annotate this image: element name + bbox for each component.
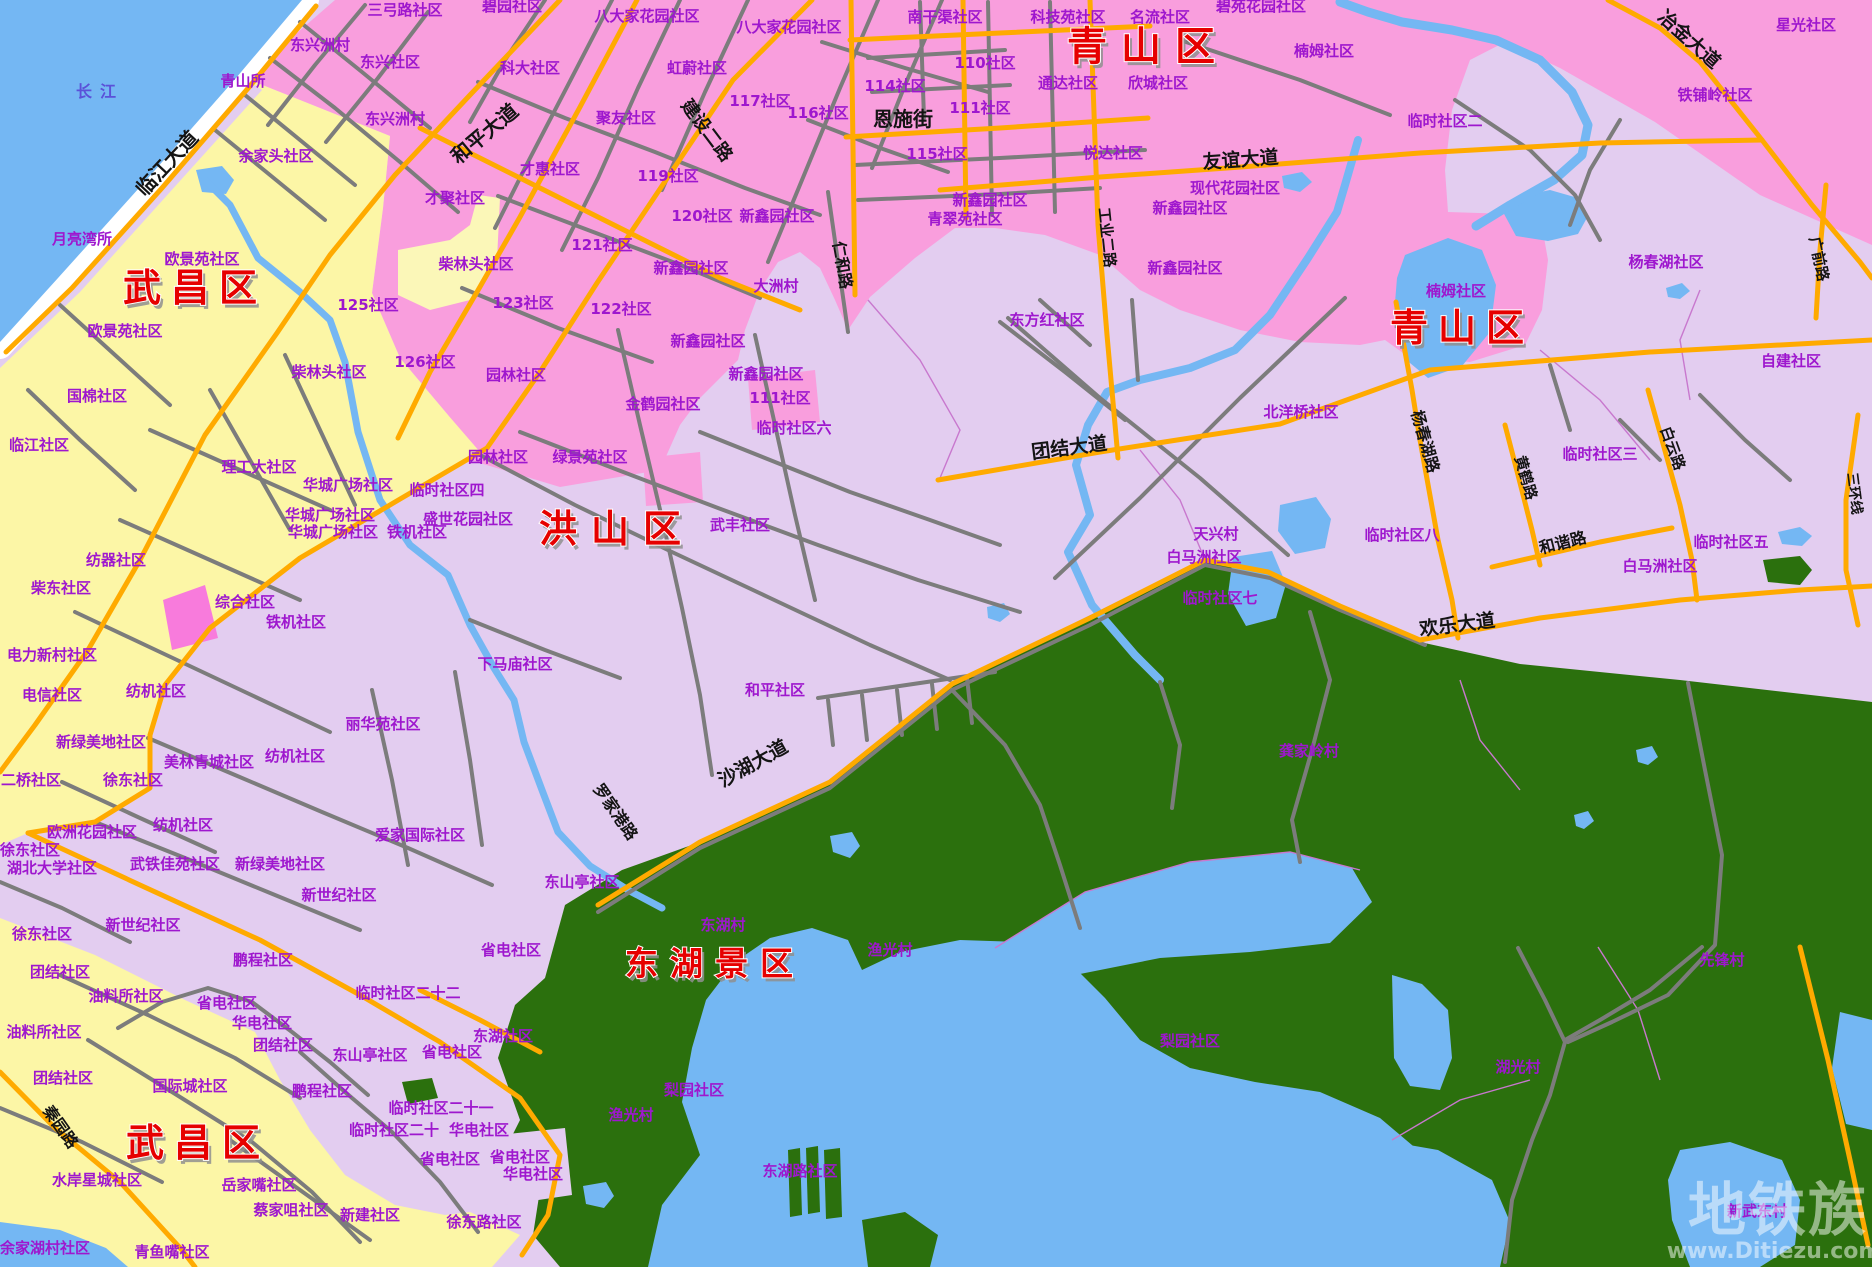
- community-label: 新世纪社区: [301, 886, 376, 904]
- community-label: 水岸星城社区: [52, 1171, 142, 1189]
- community-label: 临江社区: [9, 436, 69, 454]
- wuhan-district-map: 三弓路社区东兴洲村东兴社区青山所东兴洲村余家头社区才聚社区月亮湾所欧景苑社区欧景…: [0, 0, 1872, 1267]
- community-label: 鹏程社区: [233, 951, 293, 969]
- community-label: 东湖村: [700, 916, 745, 934]
- community-label: 聚友社区: [595, 109, 656, 127]
- community-label: 北洋桥社区: [1263, 403, 1338, 421]
- district-label: 青山区: [1390, 306, 1534, 350]
- island-bar-2: [806, 1146, 820, 1214]
- community-label: 青鱼嘴社区: [134, 1243, 209, 1261]
- community-label: 电信社区: [22, 686, 82, 704]
- community-label: 先锋村: [1699, 951, 1744, 969]
- community-label: 华城广场社区: [285, 506, 375, 524]
- community-label: 青翠苑社区: [927, 210, 1002, 228]
- community-label: 楠姆社区: [1294, 42, 1354, 60]
- community-label: 省电社区: [419, 1150, 480, 1168]
- community-label: 临时社区四: [409, 481, 484, 499]
- community-label: 二桥社区: [1, 771, 61, 789]
- water-label: 长江: [76, 82, 124, 101]
- community-label: 武丰社区: [710, 516, 770, 534]
- community-label: 新鑫园社区: [728, 365, 803, 383]
- community-label: 东湖社区: [473, 1027, 533, 1045]
- community-label: 徐东社区: [102, 771, 163, 789]
- community-label: 省电社区: [421, 1043, 482, 1061]
- community-label: 园林社区: [468, 448, 528, 466]
- island-bar-3: [824, 1148, 842, 1219]
- community-label: 团结社区: [253, 1036, 313, 1054]
- community-label: 125社区: [337, 296, 398, 314]
- community-label: 星光社区: [1776, 16, 1836, 34]
- community-label: 114社区: [864, 77, 925, 95]
- community-label: 园林社区: [486, 366, 546, 384]
- community-label: 现代花园社区: [1190, 179, 1280, 197]
- community-label: 团结社区: [33, 1069, 93, 1087]
- community-label: 省电社区: [480, 941, 541, 959]
- community-label: 临时社区六: [756, 419, 831, 437]
- community-label: 省电社区: [196, 994, 257, 1012]
- district-label: 洪山区: [539, 507, 695, 551]
- community-label: 综合社区: [215, 593, 275, 611]
- community-label: 蔡家咀社区: [252, 1201, 328, 1219]
- community-label: 青山所: [220, 72, 265, 90]
- community-label: 新鑫园社区: [1152, 199, 1227, 217]
- community-label: 油料所社区: [88, 987, 163, 1005]
- community-label: 爱家国际社区: [375, 826, 465, 844]
- community-label: 盛世花园社区: [423, 510, 513, 528]
- community-label: 临时社区二十一: [388, 1099, 493, 1117]
- community-label: 八大家花园社区: [735, 18, 841, 36]
- community-label: 临时社区二: [1407, 112, 1482, 130]
- community-label: 理工大社区: [221, 458, 296, 476]
- community-label: 新鑫园社区: [653, 259, 728, 277]
- community-label: 新鑫园社区: [670, 332, 745, 350]
- community-label: 欣城社区: [1128, 74, 1188, 92]
- community-label: 欧景苑社区: [87, 322, 162, 340]
- community-label: 111社区: [949, 99, 1010, 117]
- community-label: 楠姆社区: [1426, 282, 1486, 300]
- community-label: 临时社区五: [1693, 533, 1768, 551]
- community-label: 白马洲社区: [1622, 557, 1697, 575]
- community-label: 新鑫园社区: [739, 207, 814, 225]
- map-screenshot: 三弓路社区东兴洲村东兴社区青山所东兴洲村余家头社区才聚社区月亮湾所欧景苑社区欧景…: [0, 0, 1872, 1267]
- community-label: 117社区: [729, 92, 790, 110]
- community-label: 碧园社区: [481, 0, 542, 15]
- community-label: 东山亭社区: [544, 873, 619, 891]
- community-label: 新世纪社区: [105, 916, 180, 934]
- community-label: 华电社区: [503, 1165, 563, 1183]
- community-label: 龚家岭村: [1279, 742, 1339, 760]
- community-label: 下马庙社区: [477, 655, 552, 673]
- road-label: 恩施街: [873, 107, 933, 131]
- community-label: 悦达社区: [1083, 144, 1143, 162]
- community-label: 大洲村: [753, 277, 798, 295]
- community-label: 才聚社区: [425, 189, 485, 207]
- community-label: 新鑫园社区: [952, 191, 1027, 209]
- community-label: 天兴村: [1193, 525, 1238, 543]
- community-label: 三弓路社区: [367, 1, 442, 19]
- community-label: 119社区: [637, 167, 698, 185]
- community-label: 渔光村: [608, 1106, 653, 1124]
- community-label: 新绿美地社区: [56, 733, 146, 751]
- community-label: 通达社区: [1038, 74, 1098, 92]
- community-label: 121社区: [571, 236, 632, 254]
- community-label: 东兴洲村: [365, 110, 425, 128]
- community-label: 美林青城社区: [164, 753, 254, 771]
- community-label: 电力新村社区: [7, 646, 97, 664]
- watermark-url: www.Ditiezu.com: [1667, 1239, 1872, 1264]
- community-label: 123社区: [492, 294, 553, 312]
- community-label: 东兴洲村: [290, 36, 350, 54]
- community-label: 新鑫园社区: [1147, 259, 1222, 277]
- community-label: 岳家嘴社区: [221, 1176, 296, 1194]
- community-label: 华电社区: [449, 1121, 509, 1139]
- community-label: 徐东社区: [0, 841, 60, 859]
- community-label: 纺机社区: [265, 747, 325, 765]
- district-label: 武昌区: [126, 1121, 270, 1165]
- community-label: 柴东社区: [30, 579, 91, 597]
- community-label: 铁铺岭社区: [1677, 86, 1752, 104]
- community-label: 新绿美地社区: [235, 855, 325, 873]
- community-label: 余家头社区: [237, 147, 313, 165]
- community-label: 徐东路社区: [445, 1213, 521, 1231]
- community-label: 湖北大学社区: [7, 859, 97, 877]
- community-label: 东湖路社区: [762, 1162, 837, 1180]
- community-label: 科大社区: [500, 59, 560, 77]
- community-label: 丽华苑社区: [345, 715, 420, 733]
- community-label: 东方红社区: [1009, 311, 1084, 329]
- community-label: 油料所社区: [6, 1023, 81, 1041]
- community-label: 八大家花园社区: [593, 7, 699, 25]
- community-label: 东兴社区: [360, 53, 420, 71]
- community-label: 绿景苑社区: [552, 448, 627, 466]
- community-label: 碧苑花园社区: [1215, 0, 1306, 15]
- community-label: 纺机社区: [153, 816, 213, 834]
- district-label: 青山区: [1067, 24, 1229, 70]
- community-label: 省电社区: [489, 1148, 550, 1166]
- community-label: 团结社区: [30, 963, 90, 981]
- community-label: 111社区: [749, 389, 810, 407]
- community-label: 国际城社区: [152, 1077, 227, 1095]
- community-label: 和平社区: [745, 681, 805, 699]
- community-label: 116社区: [787, 104, 848, 122]
- community-label: 南干渠社区: [907, 8, 982, 26]
- community-label: 月亮湾所: [51, 230, 112, 248]
- community-label: 才惠社区: [520, 160, 580, 178]
- community-label: 临时社区二十二: [355, 984, 460, 1002]
- community-label: 虹蔚社区: [667, 59, 727, 77]
- community-label: 梨园社区: [663, 1081, 724, 1099]
- district-label: 武昌区: [123, 266, 267, 310]
- community-label: 自建社区: [1761, 352, 1821, 370]
- community-label: 金鹤园社区: [624, 395, 700, 413]
- community-label: 纺机社区: [126, 682, 186, 700]
- watermark-logo: 地铁族: [1688, 1176, 1868, 1244]
- community-label: 欧洲花园社区: [47, 823, 137, 841]
- community-label: 华城广场社区: [303, 476, 393, 494]
- community-label: 临时社区三: [1562, 445, 1637, 463]
- community-label: 新建社区: [340, 1206, 400, 1224]
- community-label: 122社区: [590, 300, 651, 318]
- community-label: 柴林头社区: [290, 363, 366, 381]
- community-label: 纺器社区: [86, 551, 146, 569]
- community-label: 湖光村: [1495, 1058, 1540, 1076]
- district-label: 东湖景区: [625, 944, 805, 983]
- community-label: 126社区: [394, 353, 455, 371]
- community-label: 华城广场社区: [288, 523, 378, 541]
- community-label: 渔光村: [867, 941, 912, 959]
- community-label: 东山亭社区: [332, 1046, 407, 1064]
- community-label: 余家湖村社区: [0, 1239, 90, 1257]
- community-label: 110社区: [954, 54, 1015, 72]
- community-label: 白马洲社区: [1166, 548, 1241, 566]
- island-bar-1: [788, 1148, 802, 1217]
- community-label: 临时社区七: [1182, 589, 1257, 607]
- community-label: 鹏程社区: [292, 1082, 352, 1100]
- community-label: 115社区: [906, 145, 967, 163]
- community-label: 武铁佳苑社区: [130, 855, 220, 873]
- community-label: 120社区: [671, 207, 732, 225]
- community-label: 华电社区: [232, 1014, 292, 1032]
- community-label: 杨春湖社区: [1628, 253, 1703, 271]
- community-label: 国棉社区: [67, 387, 127, 405]
- community-label: 柴林头社区: [437, 255, 513, 273]
- community-label: 临时社区二十: [349, 1121, 439, 1139]
- community-label: 临时社区八: [1364, 526, 1440, 544]
- community-label: 梨园社区: [1159, 1032, 1220, 1050]
- community-label: 铁机社区: [266, 613, 326, 631]
- community-label: 徐东社区: [11, 925, 72, 943]
